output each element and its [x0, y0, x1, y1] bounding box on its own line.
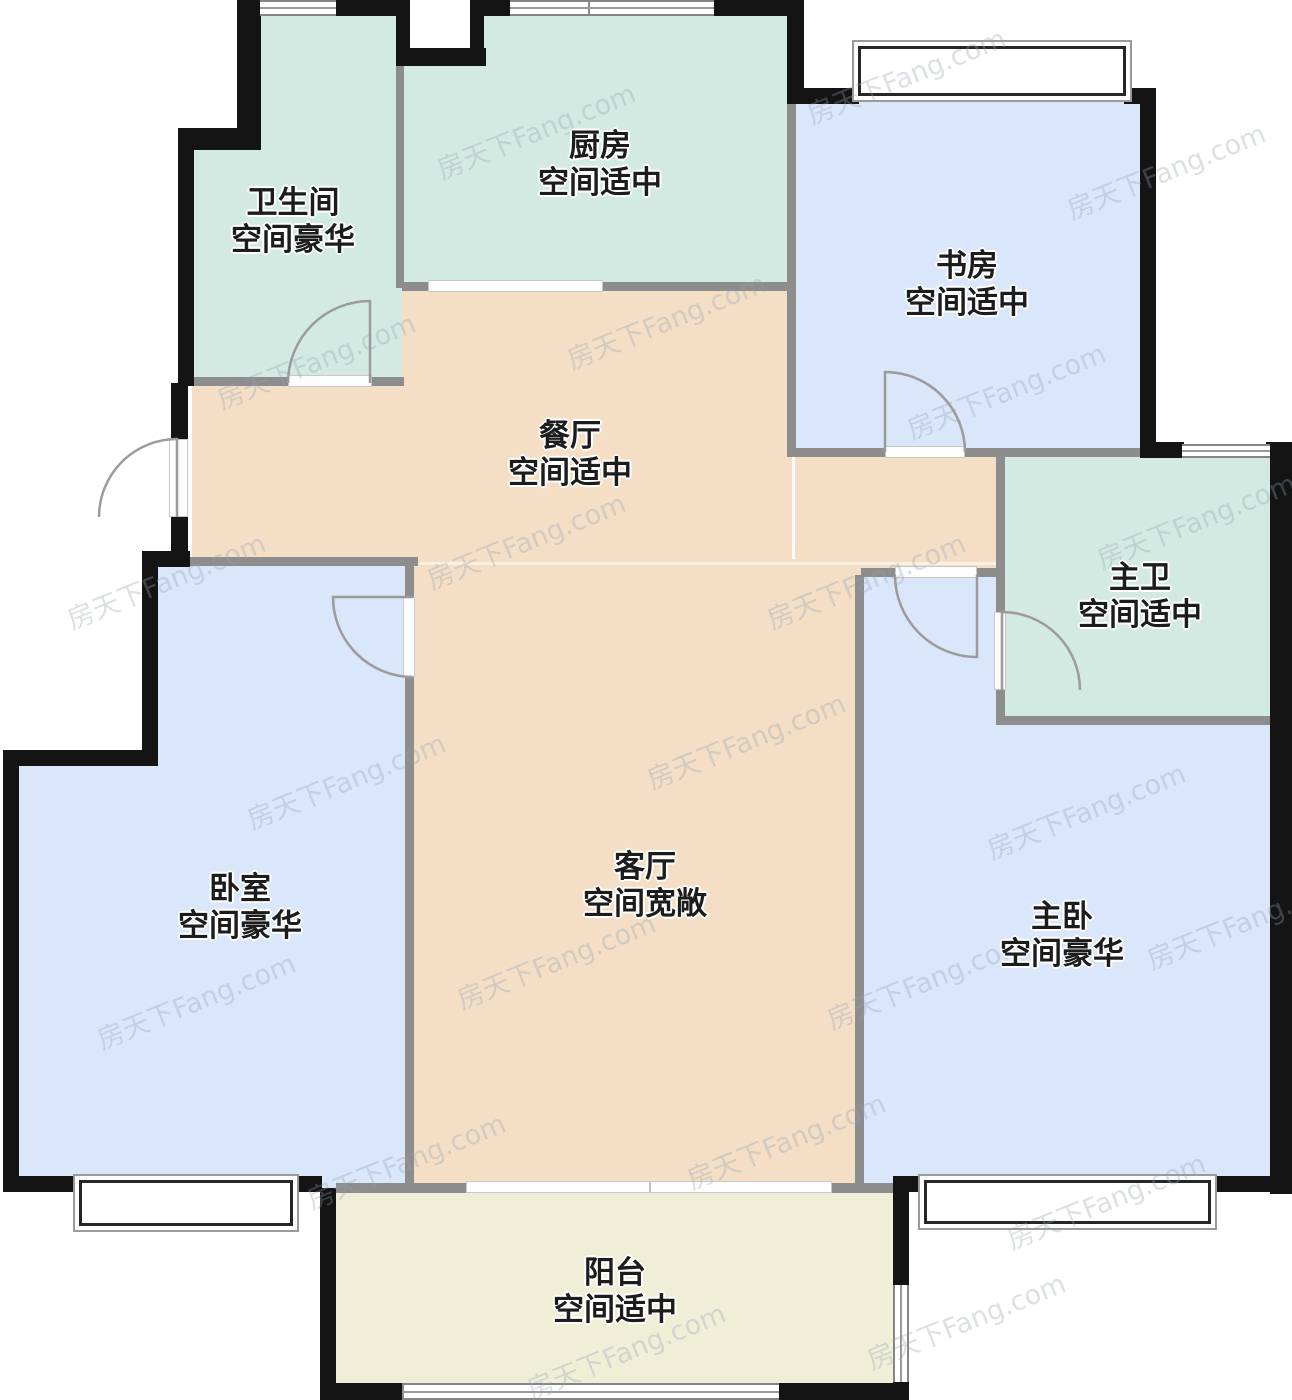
- room-name: 餐厅: [508, 418, 632, 455]
- room-label-study: 书房 空间适中: [905, 248, 1029, 322]
- wall-segment: [482, 0, 512, 16]
- window: [893, 1285, 909, 1382]
- window: [402, 1383, 779, 1400]
- room-area-master-bedroom: [863, 575, 1002, 725]
- wall-segment: [178, 148, 194, 386]
- room-grade: 空间宽敞: [583, 886, 707, 923]
- floor-plan: 房天下Fang.com房天下Fang.com房天下Fang.com房天下Fang…: [0, 0, 1292, 1400]
- wall-segment: [402, 282, 428, 291]
- wall-segment: [996, 455, 1005, 612]
- wall-segment: [171, 383, 188, 441]
- wall-segment: [190, 377, 288, 386]
- wall-segment: [3, 750, 158, 766]
- wall-segment: [330, 0, 402, 16]
- room-grade: 空间豪华: [1000, 936, 1124, 973]
- door-opening: [288, 375, 372, 387]
- zone-divider-line: [420, 562, 998, 565]
- bay-window: [918, 1174, 1217, 1230]
- wall-segment: [396, 48, 486, 66]
- room-name: 阳台: [553, 1255, 677, 1292]
- room-label-kitchen: 厨房 空间适中: [538, 128, 662, 202]
- room-grade: 空间豪华: [178, 908, 302, 945]
- room-name: 卫生间: [231, 185, 355, 222]
- room-area-bedroom: [156, 559, 405, 759]
- wall-segment: [320, 1188, 336, 1400]
- wall-segment: [1213, 1176, 1292, 1192]
- room-label-balcony: 阳台 空间适中: [553, 1255, 677, 1329]
- wall-segment: [787, 93, 796, 455]
- door-arc-entrance: [99, 439, 177, 517]
- wall-segment: [405, 566, 414, 597]
- wall-segment: [3, 753, 19, 1192]
- wall-segment: [142, 553, 158, 766]
- wall-segment: [183, 557, 418, 566]
- wall-segment: [893, 1183, 909, 1287]
- wall-segment: [861, 568, 895, 577]
- passage-opening: [428, 280, 603, 292]
- wall-segment: [787, 448, 885, 457]
- room-name: 卧室: [178, 871, 302, 908]
- sliding-door-divider: [649, 1182, 651, 1192]
- window: [260, 0, 336, 16]
- room-area-entry-hall: [192, 383, 404, 559]
- room-label-living: 客厅 空间宽敞: [583, 849, 707, 923]
- room-label-bathroom: 卫生间 空间豪华: [231, 185, 355, 259]
- room-grade: 空间适中: [538, 165, 662, 202]
- wall-segment: [787, 0, 804, 95]
- wall-segment: [777, 1383, 909, 1400]
- wall-segment: [171, 515, 188, 559]
- room-label-bedroom: 卧室 空间豪华: [178, 871, 302, 945]
- window: [510, 0, 714, 16]
- room-name: 客厅: [583, 849, 707, 886]
- window: [1182, 444, 1270, 458]
- door-opening: [169, 439, 188, 517]
- window-mullion: [588, 2, 590, 14]
- room-grade: 空间适中: [508, 455, 632, 492]
- wall-segment: [787, 88, 859, 104]
- room-area-bedroom: [17, 752, 405, 1189]
- wall-segment: [977, 568, 1004, 577]
- room-name: 主卧: [1000, 899, 1124, 936]
- door-opening: [994, 612, 1006, 690]
- room-grade: 空间豪华: [231, 222, 355, 259]
- wall-segment: [1270, 442, 1292, 1194]
- passage-opening: [466, 1181, 832, 1193]
- room-name: 厨房: [538, 128, 662, 165]
- wall-segment: [405, 677, 414, 1189]
- wall-segment: [178, 128, 260, 150]
- wall-segment: [832, 1183, 896, 1193]
- window-mullion: [402, 1385, 404, 1398]
- room-grade: 空间适中: [1078, 597, 1202, 634]
- wall-segment: [855, 575, 864, 1189]
- room-grade: 空间适中: [553, 1292, 677, 1329]
- room-name: 书房: [905, 248, 1029, 285]
- wall-segment: [603, 282, 793, 291]
- bay-window: [852, 40, 1132, 102]
- door-opening: [885, 446, 965, 458]
- room-name: 主卫: [1078, 560, 1202, 597]
- wall-segment: [295, 1176, 322, 1192]
- wall-segment: [372, 377, 404, 386]
- room-label-dining: 餐厅 空间适中: [508, 418, 632, 492]
- exterior-notch: [178, 0, 240, 130]
- wall-segment: [336, 1183, 466, 1193]
- room-grade: 空间适中: [905, 285, 1029, 322]
- door-opening: [895, 566, 977, 578]
- wall-segment: [963, 448, 1148, 457]
- wall-segment: [396, 58, 404, 288]
- room-label-master-bath: 主卫 空间适中: [1078, 560, 1202, 634]
- door-opening: [403, 597, 415, 677]
- wall-segment: [1140, 442, 1184, 458]
- wall-segment: [1140, 88, 1156, 458]
- wall-segment: [996, 716, 1276, 725]
- bay-window: [73, 1174, 299, 1232]
- room-label-master-bedroom: 主卧 空间豪华: [1000, 899, 1124, 973]
